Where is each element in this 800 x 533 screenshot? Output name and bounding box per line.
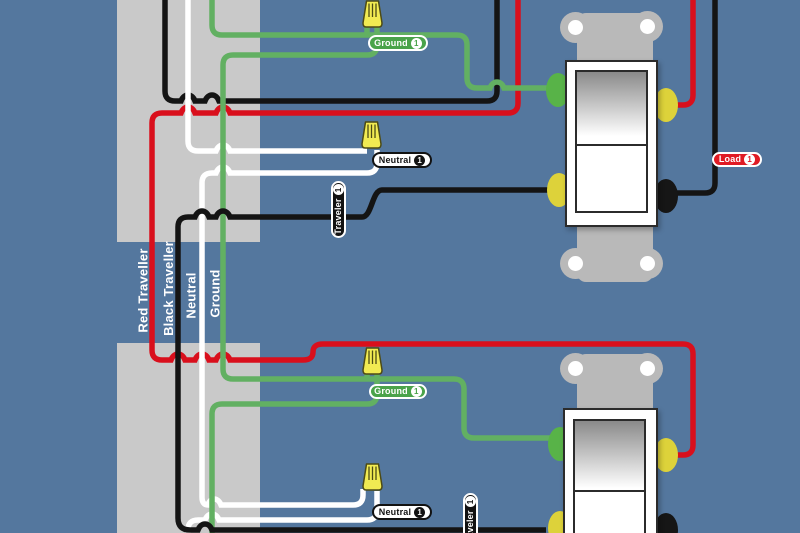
neutral-label-bottom: Neutral1 [372, 504, 432, 520]
neutral-label-top: Neutral1 [372, 152, 432, 168]
load-label-text: Load [719, 155, 741, 164]
ground-label-top-text: Ground [374, 39, 408, 48]
neutral-label-top-badge: 1 [414, 155, 425, 166]
traveler-label-top-badge: 1 [333, 184, 344, 195]
neutral-label-top-text: Neutral [379, 156, 411, 165]
wiring-diagram: Ground1Neutral1Traveler1Load1Ground1Neut… [0, 0, 800, 533]
traveler-label-bottom-text: Traveler [466, 510, 475, 533]
neutral-label-bottom-text: Neutral [379, 508, 411, 517]
load-label: Load1 [712, 152, 762, 167]
ground-label-bottom-text: Ground [374, 387, 408, 396]
traveler-label-bottom-badge: 1 [465, 496, 476, 507]
traveler-label-bottom: Traveler1 [463, 493, 478, 533]
neutral-gap-label: Neutral [184, 273, 199, 319]
red-traveller-gap-label: Red Traveller [136, 248, 151, 334]
traveler-label-top-text: Traveler [334, 198, 343, 234]
traveler-label-top: Traveler1 [331, 181, 346, 238]
ground-label-bottom: Ground1 [369, 384, 427, 399]
neutral-label-bottom-badge: 1 [414, 507, 425, 518]
ground-label-bottom-badge: 1 [411, 386, 422, 397]
ground-label-top: Ground1 [368, 35, 428, 51]
load-label-badge: 1 [744, 154, 755, 165]
ground-gap-label: Ground [208, 270, 223, 318]
labels-layer: Ground1Neutral1Traveler1Load1Ground1Neut… [0, 0, 800, 533]
ground-label-top-badge: 1 [411, 38, 422, 49]
black-traveller-gap-label: Black Traveller [161, 240, 176, 337]
